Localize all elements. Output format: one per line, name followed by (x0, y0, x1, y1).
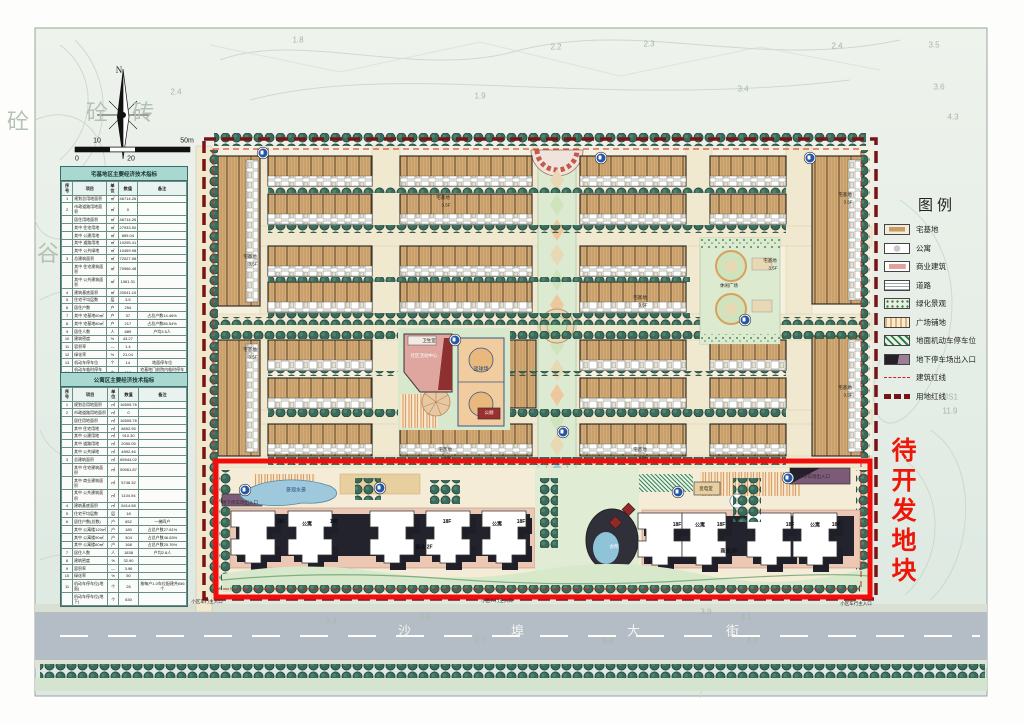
table-cell: ㎡ (108, 417, 119, 425)
table-cell: 27933.50 (118, 224, 138, 232)
table-cell: 43.27 (118, 335, 138, 343)
table-cell: 人 (107, 327, 118, 335)
table-row: 居住用地面积㎡16505.76 (62, 417, 187, 425)
table-cell: 占总户数46.63% (138, 533, 186, 541)
table-cell: 机动车停车位 (73, 358, 107, 366)
table-cell: 户 (108, 526, 119, 534)
table-cell (138, 262, 187, 275)
table-cell: 70966.48 (118, 262, 138, 275)
table-cell (62, 224, 73, 232)
legend-label: 广场铺地 (916, 317, 946, 328)
table-cell: 容积率 (73, 564, 108, 572)
table-header-cell: 备注 (138, 182, 187, 196)
table-cell: 13 (62, 358, 73, 366)
table-cell: 机动车停车位(地面) (73, 580, 108, 593)
table-cell: 建筑基底面积 (73, 288, 107, 296)
table-cell: 0 (118, 203, 138, 216)
legend-swatch-apartment (884, 243, 910, 254)
main-street (35, 604, 987, 691)
table-cell: 户 (107, 320, 118, 328)
table-cell: ㎡ (108, 401, 119, 409)
table-cell (138, 593, 186, 606)
table-row: 居住用地面积㎡46714.26 (62, 216, 187, 224)
table-cell (138, 343, 187, 351)
legend-item: 宅基地 (884, 224, 990, 235)
table-cell: ㎡ (108, 455, 119, 463)
legend-label: 地下停车场出入口 (916, 354, 976, 365)
table-row: 其中 住宅建筑面积㎡70966.48 (62, 262, 187, 275)
table-cell: 建筑基底面积 (73, 502, 108, 510)
table-cell (138, 216, 187, 224)
table-cell: 层 (107, 296, 118, 304)
table-cell: 居住人数 (73, 549, 108, 557)
table-cell: 建筑密度 (73, 557, 108, 565)
table-cell: 180 (119, 526, 139, 534)
table-cell: 总建筑面积 (73, 255, 107, 263)
table-cell: 3.5 (118, 296, 138, 304)
table-row: 其中 公寓楼90㎡户304占总户数46.63% (62, 533, 187, 541)
table-cell: 其中 道路用地 (73, 440, 108, 448)
table-row: 其中 公共绿地㎡4892.46 (62, 448, 187, 456)
legend-label: 宅基地 (916, 224, 939, 235)
table-cell: 5 (62, 510, 73, 518)
table-cell: 6 (62, 518, 73, 526)
legend-label: 商业建筑 (916, 261, 946, 272)
table-cell: 5414.58 (119, 502, 139, 510)
table-cell: 其中 公建用地 (73, 231, 107, 239)
legend-swatch-green-landscape (884, 298, 910, 309)
table-header-cell: 数值 (119, 388, 139, 402)
table-cell (62, 239, 73, 247)
table-cell: 占总户数27.61% (138, 526, 186, 534)
table-cell: 住宅平均层数 (73, 510, 108, 518)
legend-item: 用地红线 (884, 391, 990, 402)
table-cell: 5746.32 (119, 476, 139, 489)
table-cell: 占总户数85.54% (138, 320, 187, 328)
table-row: 5住宅平均层数层18 (62, 510, 187, 518)
table-cell: ㎡ (107, 255, 118, 263)
table-row: 其中 住宅用地㎡8652.95 (62, 424, 187, 432)
table-cell (138, 424, 186, 432)
table-cell: 16505.76 (119, 401, 139, 409)
table-cell: 按每户1.0车位配建共656个 (138, 580, 186, 593)
table-cell (138, 448, 186, 456)
table-row: 11容积率—1.4 (62, 343, 187, 351)
table-cell: 户 (108, 518, 119, 526)
table-cell (138, 304, 187, 312)
table-cell (138, 401, 186, 409)
table-cell: 8652.95 (119, 424, 139, 432)
table-cell: ㎡ (107, 203, 118, 216)
table-row: 6居住户数户254 (62, 304, 187, 312)
table-cell (138, 351, 187, 359)
legend-swatch-site-redline (884, 394, 910, 399)
legend-item: 道路 (884, 280, 990, 291)
table-cell (138, 239, 187, 247)
table-cell: 889 (118, 327, 138, 335)
table-cell: 3 (62, 255, 73, 263)
legend-item: 地下停车场出入口 (884, 354, 990, 365)
table-cell: 8 (62, 557, 73, 565)
table-cell (62, 593, 73, 606)
legend-label: 道路 (916, 280, 931, 291)
table-row: 10绿化率%50 (62, 572, 187, 580)
table-row: 12绿化率%21.04 (62, 351, 187, 359)
table-cell (138, 455, 186, 463)
table-cell (138, 255, 187, 263)
table-cell: ㎡ (107, 231, 118, 239)
table-cell (62, 541, 73, 549)
table-cell (138, 463, 186, 476)
legend-item: 建筑红线 (884, 372, 990, 383)
table-cell: % (108, 572, 119, 580)
table-cell: 32.90 (119, 557, 139, 565)
table-row: 1规划总用地面积㎡46714.26 (62, 195, 187, 203)
table-cell: 14 (118, 358, 138, 366)
table-cell: 其中 公共绿地 (73, 247, 107, 255)
table-cell (62, 448, 73, 456)
substation-building (694, 482, 720, 495)
table-cell: 254 (118, 304, 138, 312)
apartment-indicators-table: 公寓区主要经济技术指标序号项目单位数值备注1规划总用地面积㎡16505.762市… (60, 372, 188, 607)
table-cell: 59061.87 (119, 463, 139, 476)
table-cell: 其中 公寓楼90㎡ (73, 533, 108, 541)
legend-item: 绿化景观 (884, 298, 990, 309)
table-cell: ㎡ (107, 195, 118, 203)
clinic-building (408, 336, 436, 345)
table-cell (138, 195, 187, 203)
community-center-area (398, 328, 510, 430)
table-cell: 168 (119, 541, 139, 549)
table-cell: 其中 商业建筑面积 (73, 476, 108, 489)
table-cell: 12 (62, 351, 73, 359)
table-cell: ㎡ (108, 476, 119, 489)
table-cell (62, 463, 73, 476)
table-cell: ㎡ (107, 247, 118, 255)
legend-item: 广场铺地 (884, 317, 990, 328)
table-cell (62, 533, 73, 541)
table-header-cell: 单位 (107, 182, 118, 196)
table-cell: 3.96 (119, 564, 139, 572)
table-cell: 其中 公寓楼120㎡ (73, 526, 108, 534)
table-cell (138, 335, 187, 343)
table-cell: ㎡ (108, 489, 119, 502)
table-cell: 建筑密度 (73, 335, 107, 343)
table-cell: ㎡ (107, 216, 118, 224)
legend-panel: 图例 宅基地 公寓 商业建筑 道路 绿化景观 广场铺地 地面机动车停车位 地下停… (884, 194, 990, 409)
table-cell: 其中 公共绿地 (73, 448, 108, 456)
table-cell: 1061.31 (118, 275, 138, 288)
legend-title: 图例 (884, 194, 990, 215)
table-cell: 占总户数25.76% (138, 541, 186, 549)
table-cell (138, 502, 186, 510)
table-cell: 0 (119, 409, 139, 417)
public-toilet-building (478, 408, 500, 419)
table-row: 7其中 宅基地60㎡户37占总户数14.46% (62, 312, 187, 320)
table-cell: 规划总用地面积 (73, 401, 108, 409)
table-row: 9容积率—3.96 (62, 564, 187, 572)
homestead-indicators-table: 宅基地区主要经济技术指标序号项目单位数值备注1规划总用地面积㎡46714.262… (60, 166, 188, 381)
table-cell (138, 432, 186, 440)
table-cell: 5 (62, 296, 73, 304)
table-cell: 居住人数 (73, 327, 107, 335)
table-cell (138, 288, 187, 296)
table-cell: 9 (62, 327, 73, 335)
table-cell: 其中 住宅建筑面积 (73, 463, 108, 476)
table-cell: 层 (108, 510, 119, 518)
table-title: 公寓区主要经济技术指标 (61, 373, 187, 387)
table-row: 8其中 宅基地80㎡户217占总户数85.54% (62, 320, 187, 328)
table-cell: 住宅平均层数 (73, 296, 107, 304)
table-cell: % (108, 557, 119, 565)
legend-item: 公寓 (884, 243, 990, 254)
table-cell (138, 489, 186, 502)
legend-swatch-building-redline (884, 377, 910, 378)
table-cell: 10 (62, 335, 73, 343)
table-cell: 其中 道路用地 (73, 239, 107, 247)
table-cell: 个 (108, 593, 119, 606)
table-cell (138, 275, 187, 288)
table-row: 4建筑基底面积㎡5414.58 (62, 502, 187, 510)
leisure-garden (700, 238, 780, 344)
table-cell: 6 (62, 304, 73, 312)
table-row: 5住宅平均层数层3.5 (62, 296, 187, 304)
table-cell (138, 440, 186, 448)
legend-swatch-commercial (884, 261, 910, 272)
table-row: 2市政道路用地面积㎡0 (62, 203, 187, 216)
table-header-cell: 项目 (73, 388, 108, 402)
table-cell: 9 (62, 564, 73, 572)
table-cell: 910.30 (119, 432, 139, 440)
table-cell: 3 (62, 455, 73, 463)
table-title: 宅基地区主要经济技术指标 (61, 167, 187, 181)
table-cell (62, 489, 73, 502)
table-cell: 4892.46 (119, 448, 139, 456)
table-cell: 630 (119, 593, 139, 606)
table-row: 其中 公寓楼60㎡户168占总户数25.76% (62, 541, 187, 549)
table-cell: 户 (107, 304, 118, 312)
table-cell (62, 247, 73, 255)
table-row: 其中 公建用地㎡910.30 (62, 432, 187, 440)
table-cell: 20041.10 (118, 288, 138, 296)
table-row: 其中 住宅建筑面积㎡59061.87 (62, 463, 187, 476)
table-row: 3总建筑面积㎡72027.98 (62, 255, 187, 263)
table-header-cell: 数值 (118, 182, 138, 196)
table-row: 3总建筑面积㎡65944.02 (62, 455, 187, 463)
table-cell: 46714.26 (118, 195, 138, 203)
table-cell: 1838 (119, 549, 139, 557)
table-cell: 其中 宅基地60㎡ (73, 312, 107, 320)
table-cell (62, 476, 73, 489)
masterplan-sheet: 宅基地3.5F宅基地3.5F宅基地3.5F宅基地3.5F宅基地3.5F宅基地3.… (0, 0, 1024, 724)
legend-swatch-road (884, 280, 910, 291)
table-cell: 户均3.5人 (138, 327, 187, 335)
table-cell: 304 (119, 533, 139, 541)
table-cell: ㎡ (108, 409, 119, 417)
table-cell: 其中 公共建筑面积 (73, 275, 107, 288)
table-cell: 10295.41 (118, 239, 138, 247)
table-cell: ㎡ (108, 502, 119, 510)
legend-swatch-homestead (884, 224, 910, 235)
table-cell: ㎡ (107, 275, 118, 288)
scale-bar (75, 147, 190, 152)
table-cell: 其中 公建用地 (73, 432, 108, 440)
table-cell: ㎡ (107, 239, 118, 247)
table-cell: 市政道路用地面积 (73, 409, 108, 417)
table-row: 其中 公共建筑面积㎡1061.31 (62, 275, 187, 288)
legend-swatch-ground-parking (884, 335, 910, 346)
table-cell: ㎡ (108, 448, 119, 456)
indicator-table: 序号项目单位数值备注1规划总用地面积㎡16505.762市政道路用地面积㎡0居住… (61, 387, 187, 606)
indicator-table: 序号项目单位数值备注1规划总用地面积㎡46714.262市政道路用地面积㎡0居住… (61, 181, 187, 380)
table-cell: 其中 住宅建筑面积 (73, 262, 107, 275)
table-cell: 一梯四户 (138, 518, 186, 526)
table-cell (62, 424, 73, 432)
table-cell: ㎡ (108, 432, 119, 440)
table-cell: % (107, 335, 118, 343)
table-cell: 217 (118, 320, 138, 328)
table-cell: 65944.02 (119, 455, 139, 463)
legend-label: 地面机动车停车位 (916, 335, 976, 346)
table-cell: 10 (62, 572, 73, 580)
table-row: 1规划总用地面积㎡16505.76 (62, 401, 187, 409)
table-cell: 7 (62, 312, 73, 320)
table-cell: 50 (119, 572, 139, 580)
street-tree-row (40, 664, 985, 678)
table-cell: 11 (62, 580, 73, 593)
table-cell: 1 (62, 401, 73, 409)
table-cell: 居住用地面积 (73, 417, 108, 425)
table-cell: 容积率 (73, 343, 107, 351)
table-header-cell: 备注 (138, 388, 186, 402)
table-row: 机动车停车位(地下)个630 (62, 593, 187, 606)
legend-swatch-underground-entrance (884, 354, 910, 365)
table-cell: 总建筑面积 (73, 455, 108, 463)
table-row: 其中 道路用地㎡10295.41 (62, 239, 187, 247)
table-cell: 859.04 (118, 231, 138, 239)
legend-swatch-plaza-paving (884, 317, 910, 328)
table-header-cell: 序号 (62, 388, 73, 402)
table-cell (138, 572, 186, 580)
legend-label: 绿化景观 (916, 298, 946, 309)
table-cell: 1104.94 (119, 489, 139, 502)
table-cell: 绿化率 (73, 572, 108, 580)
table-cell: 4 (62, 288, 73, 296)
table-cell: 居住户数(总数) (73, 518, 108, 526)
table-cell (138, 557, 186, 565)
table-cell: 1.4 (118, 343, 138, 351)
table-cell: 72027.98 (118, 255, 138, 263)
table-cell: ㎡ (108, 463, 119, 476)
table-cell (138, 409, 186, 417)
table-cell: 11 (62, 343, 73, 351)
table-header-cell: 序号 (62, 182, 73, 196)
table-cell: 其中 宅基地80㎡ (73, 320, 107, 328)
legend-label: 建筑红线 (916, 372, 946, 383)
table-cell: 37 (118, 312, 138, 320)
table-row: 7居住人数人1838户均2.8人 (62, 549, 187, 557)
table-cell: — (107, 343, 118, 351)
table-cell: 652 (119, 518, 139, 526)
table-cell: 16505.76 (119, 417, 139, 425)
table-cell: — (108, 564, 119, 572)
table-cell (138, 476, 186, 489)
table-cell: 2 (62, 203, 73, 216)
table-cell: 市政道路用地面积 (73, 203, 107, 216)
table-cell (62, 231, 73, 239)
table-cell: 户 (108, 541, 119, 549)
table-cell (138, 564, 186, 572)
table-cell: 地面停车位 (138, 358, 187, 366)
table-row: 13机动车停车位个14地面停车位 (62, 358, 187, 366)
table-cell (138, 296, 187, 304)
table-cell: 户均2.8人 (138, 549, 186, 557)
table-row: 9居住人数人889户均3.5人 (62, 327, 187, 335)
table-cell: 人 (108, 549, 119, 557)
table-cell: 居住用地面积 (73, 216, 107, 224)
table-cell (62, 526, 73, 534)
table-row: 其中 公建用地㎡859.04 (62, 231, 187, 239)
table-cell: ㎡ (107, 262, 118, 275)
table-row: 其中 住宅用地㎡27933.50 (62, 224, 187, 232)
table-row: 8建筑密度%32.90 (62, 557, 187, 565)
table-cell: 户 (107, 312, 118, 320)
table-cell: 21.04 (118, 351, 138, 359)
legend-label: 公寓 (916, 243, 931, 254)
table-cell: 7 (62, 549, 73, 557)
table-cell: 占总户数14.46% (138, 312, 187, 320)
table-cell: 户 (108, 533, 119, 541)
table-cell: % (107, 351, 118, 359)
table-cell: 其中 住宅用地 (73, 424, 108, 432)
legend-label: 用地红线 (916, 391, 946, 402)
table-cell: 绿化率 (73, 351, 107, 359)
table-cell (138, 231, 187, 239)
table-cell: ㎡ (108, 424, 119, 432)
table-row: 其中 商业建筑面积㎡5746.32 (62, 476, 187, 489)
table-cell (62, 432, 73, 440)
legend-item: 商业建筑 (884, 261, 990, 272)
table-cell (62, 440, 73, 448)
table-cell: 2 (62, 409, 73, 417)
table-cell: 4 (62, 502, 73, 510)
table-cell: 1 (62, 195, 73, 203)
table-cell: 8 (62, 320, 73, 328)
table-cell: 规划总用地面积 (73, 195, 107, 203)
table-cell: 其中 公寓楼60㎡ (73, 541, 108, 549)
apartment-zone (218, 468, 870, 596)
table-row: 其中 公寓楼120㎡户180占总户数27.61% (62, 526, 187, 534)
table-cell (138, 417, 186, 425)
table-cell: 18 (119, 510, 139, 518)
table-cell: 个 (108, 580, 119, 593)
legend-item: 地面机动车停车位 (884, 335, 990, 346)
table-cell (62, 417, 73, 425)
table-cell (138, 247, 187, 255)
table-row: 4建筑基底面积㎡20041.10 (62, 288, 187, 296)
table-cell: ㎡ (107, 224, 118, 232)
table-cell: 居住户数 (73, 304, 107, 312)
table-cell: 机动车停车位(地下) (73, 593, 108, 606)
table-cell: 个 (107, 358, 118, 366)
table-cell (62, 262, 73, 275)
table-header-cell: 单位 (108, 388, 119, 402)
table-cell: ㎡ (108, 440, 119, 448)
table-row: 11机动车停车位(地面)个26按每户1.0车位配建共656个 (62, 580, 187, 593)
table-cell: 10459.98 (118, 247, 138, 255)
table-header-cell: 项目 (73, 182, 107, 196)
table-cell: ㎡ (107, 288, 118, 296)
